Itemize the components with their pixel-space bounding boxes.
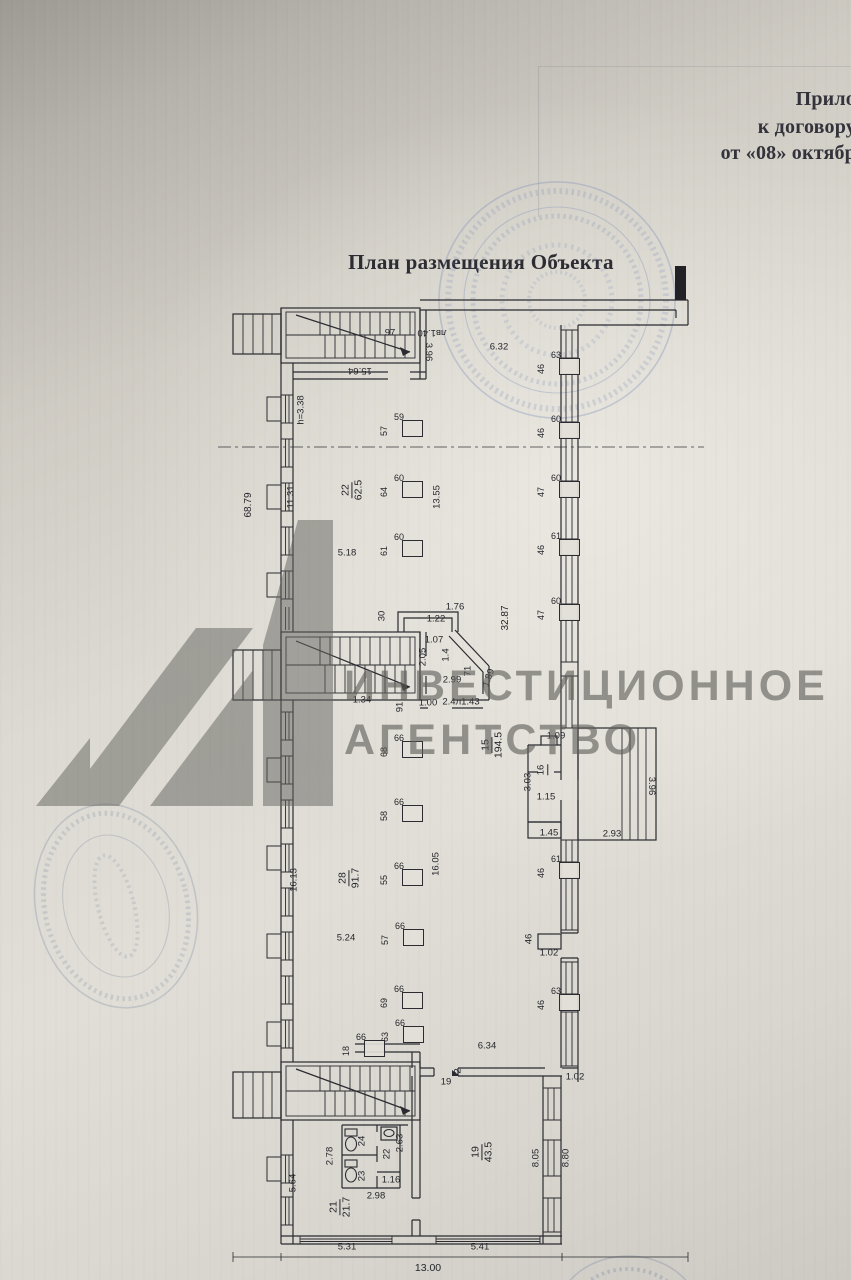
- plan-room-label: 2891.7: [336, 868, 361, 888]
- plan-dim-label: 5.24: [337, 933, 356, 943]
- plan-dim-label: 71: [463, 666, 473, 677]
- plan-dim-label: 8.05: [531, 1149, 541, 1168]
- plan-dim-label: 22: [382, 1149, 392, 1160]
- plan-dim-label: 1.02: [540, 948, 559, 958]
- plan-dim-label: 2.78: [325, 1147, 335, 1166]
- plan-dim-label: 16: [536, 765, 548, 776]
- plan-dim-label: 6.32: [490, 342, 509, 352]
- plan-room-label: 1943.5: [469, 1142, 494, 1162]
- plan-dim-label: 5.41: [471, 1242, 490, 1252]
- plan-dim-label: 91: [395, 702, 405, 713]
- plan-dim-label: 2.63: [395, 1134, 405, 1153]
- scanned-document-page: Прило к договору от «08» октябр План раз…: [0, 0, 851, 1280]
- plan-dim-label: 6.34: [478, 1041, 497, 1051]
- plan-dim-label: 2.99: [443, 675, 462, 685]
- plan-dim-label: 1.4: [441, 648, 451, 661]
- plan-dim-label: 5.64: [288, 1174, 298, 1193]
- plan-dim-label: 2.05: [418, 648, 428, 667]
- plan-dim-label: 3.96: [423, 343, 433, 362]
- plan-dim-label: 1.15: [537, 792, 556, 802]
- plan-dim-label: 5.18: [338, 548, 357, 558]
- plan-dim-label: 1.02: [566, 1072, 585, 1082]
- plan-room-label: 2262.5: [339, 480, 364, 500]
- plan-dim-label: 2.93: [603, 829, 622, 839]
- plan-dim-label: 1.22: [427, 614, 446, 624]
- plan-dim-label: 1.89: [481, 668, 496, 689]
- plan-dim-label: 1.09: [547, 731, 566, 741]
- plan-dim-label: 24: [357, 1136, 367, 1147]
- plan-dim-label: 1.16: [382, 1175, 401, 1185]
- plan-dim-label: 32.87: [501, 605, 511, 630]
- plan-dim-label: 1.34: [353, 695, 372, 705]
- plan-dim-label: 5.31: [338, 1242, 357, 1252]
- plan-dim-label: 46: [524, 934, 534, 945]
- plan-dim-label: 1.07: [425, 635, 444, 645]
- plan-dim-label: 2.4л1.43: [442, 697, 479, 707]
- plan-dim-label: 68.79: [244, 492, 254, 517]
- plan-dim-label: 19: [441, 1077, 452, 1087]
- plan-dim-label: 30: [377, 611, 387, 622]
- plan-dim-label: 11.31: [286, 485, 296, 508]
- plan-dim-label: 13.00: [415, 1263, 441, 1274]
- plan-dim-label: лв1.40: [417, 327, 446, 337]
- plan-dim-label: 2.98: [367, 1191, 386, 1201]
- plan-dim-label: 8.80: [561, 1149, 571, 1168]
- plan-dim-label: 2: [453, 1068, 463, 1073]
- plan-dim-label: 16.05: [431, 852, 441, 876]
- plan-dim-label: 3.03: [523, 773, 533, 792]
- plan-dim-label: h=3.38: [296, 395, 306, 424]
- plan-dim-label: 23: [357, 1171, 367, 1182]
- plan-dim-label: 16.13: [289, 868, 299, 892]
- plan-dim-label: 1.76: [446, 602, 465, 612]
- plan-room-label: 15194.5: [479, 732, 504, 758]
- plan-dim-label: 1.45: [540, 828, 559, 838]
- plan-dim-label: 13.55: [432, 485, 442, 509]
- plan-dim-label: 1.00: [419, 698, 438, 708]
- plan-dim-label: 3.96: [646, 777, 656, 796]
- plan-dim-label: 15.64: [348, 365, 372, 375]
- plan-labels-overlay: 15.6497лв1.403.966.32h=3.3868.7911.3113.…: [0, 0, 851, 1280]
- plan-room-label: 2121.7: [327, 1197, 352, 1217]
- plan-dim-label: 97: [385, 328, 396, 338]
